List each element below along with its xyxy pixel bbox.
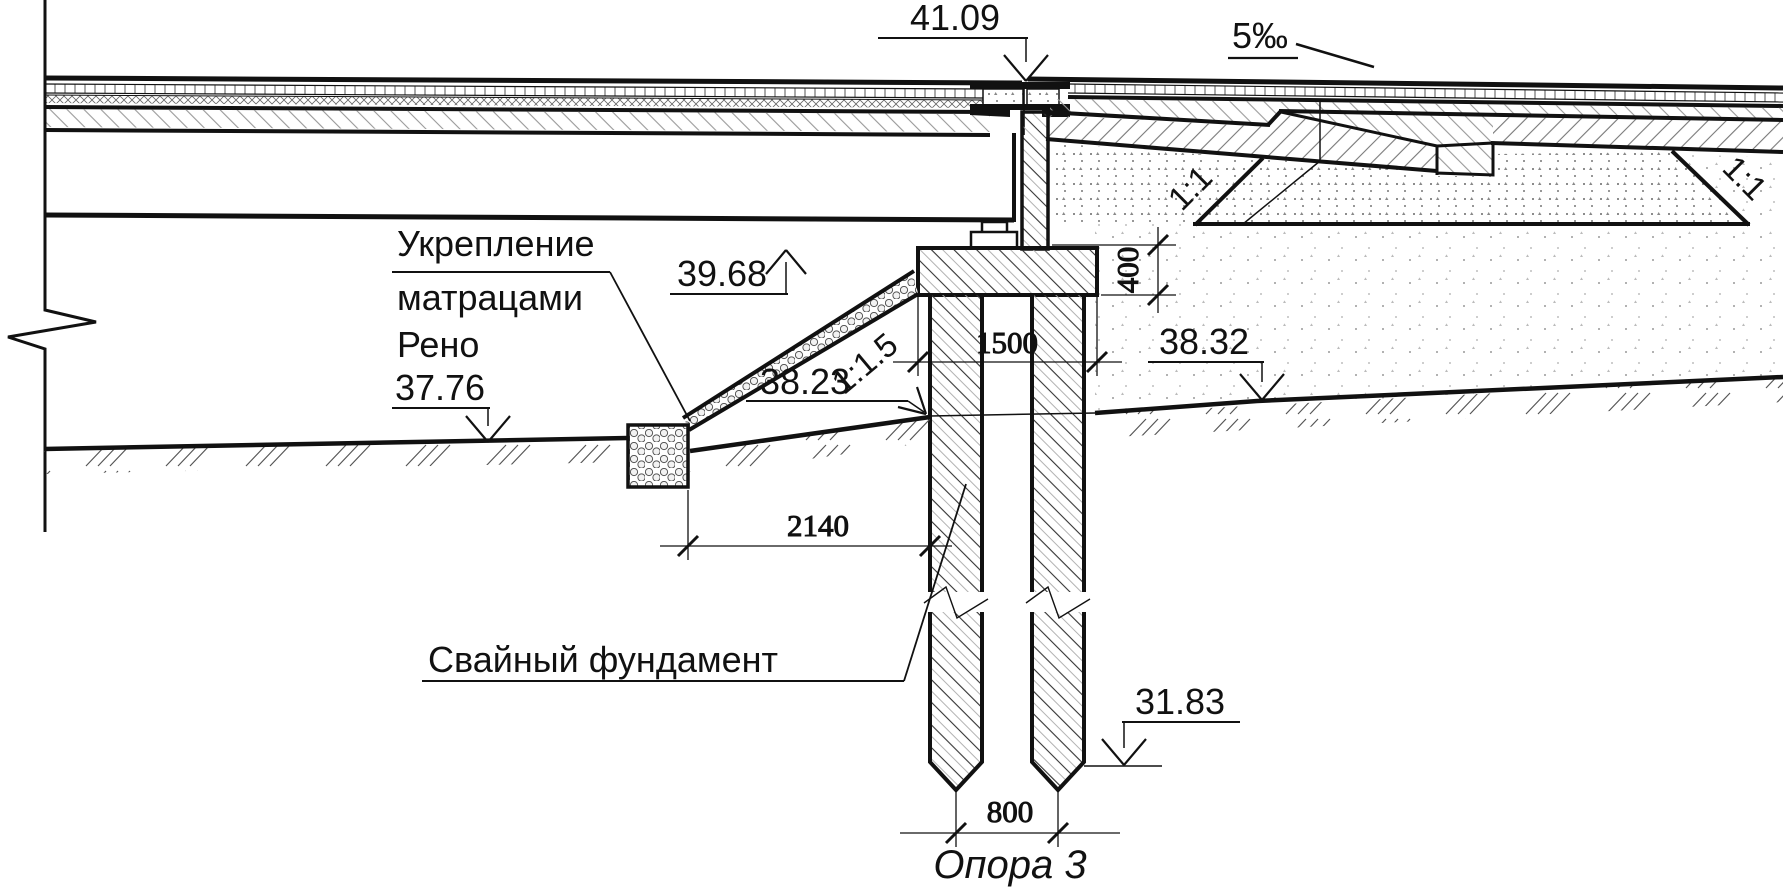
deck-top-line-left	[44, 78, 1022, 83]
dim-cap-width: 1500	[893, 297, 1122, 376]
drawing-canvas: 1500 400 2140 800	[0, 0, 1783, 892]
callout-pile-foundation: Свайный фундамент	[422, 484, 966, 681]
dim-cap-width-value: 1500	[976, 325, 1038, 360]
reno-label-line2: матрацами	[397, 277, 583, 318]
elevation-ground-right-value: 38.32	[1159, 321, 1249, 362]
elevation-pile-tip-value: 31.83	[1135, 681, 1225, 722]
elevation-cap-top-value: 39.68	[677, 253, 767, 294]
dim-pile-spacing-value: 800	[987, 794, 1034, 829]
dim-berm: 2140	[660, 490, 952, 560]
joint-filler-left	[983, 89, 1023, 106]
elevation-ground-left-value: 37.76	[395, 367, 485, 408]
bridge-deck-left	[44, 78, 1022, 222]
girder-bottom-left	[44, 215, 1014, 220]
drawing-title: Опора 3	[933, 843, 1086, 887]
dim-cap-height-value: 400	[1110, 247, 1145, 294]
pile-right	[1026, 295, 1090, 790]
roadway-slope-value: 5‰	[1232, 15, 1288, 56]
ground	[44, 377, 1783, 476]
approach-right	[1028, 79, 1783, 413]
elevation-deck-joint-value: 41.09	[910, 0, 1000, 38]
dim-berm-value: 2140	[787, 508, 849, 543]
abutment-stem	[1022, 112, 1048, 249]
reno-label-line3: Рено	[397, 324, 479, 365]
slope-direction-tick	[1296, 44, 1374, 67]
engineering-drawing-pier3: 1500 400 2140 800	[0, 0, 1783, 892]
sleeper-block	[1437, 143, 1493, 175]
elevation-pile-tip: 31.83	[1084, 681, 1240, 766]
pile-foundation-label: Свайный фундамент	[428, 639, 778, 680]
pile-cap	[918, 248, 1097, 295]
dim-pile-spacing: 800	[900, 792, 1120, 847]
elevation-ground-left: 37.76	[392, 367, 510, 442]
elevation-cap-top: 39.68	[670, 250, 806, 294]
elevation-deck-joint: 41.09	[878, 0, 1048, 81]
bearing-pad-lower	[971, 232, 1017, 248]
toe-gabion-block	[628, 425, 688, 487]
reno-label-line1: Укрепление	[397, 223, 595, 264]
